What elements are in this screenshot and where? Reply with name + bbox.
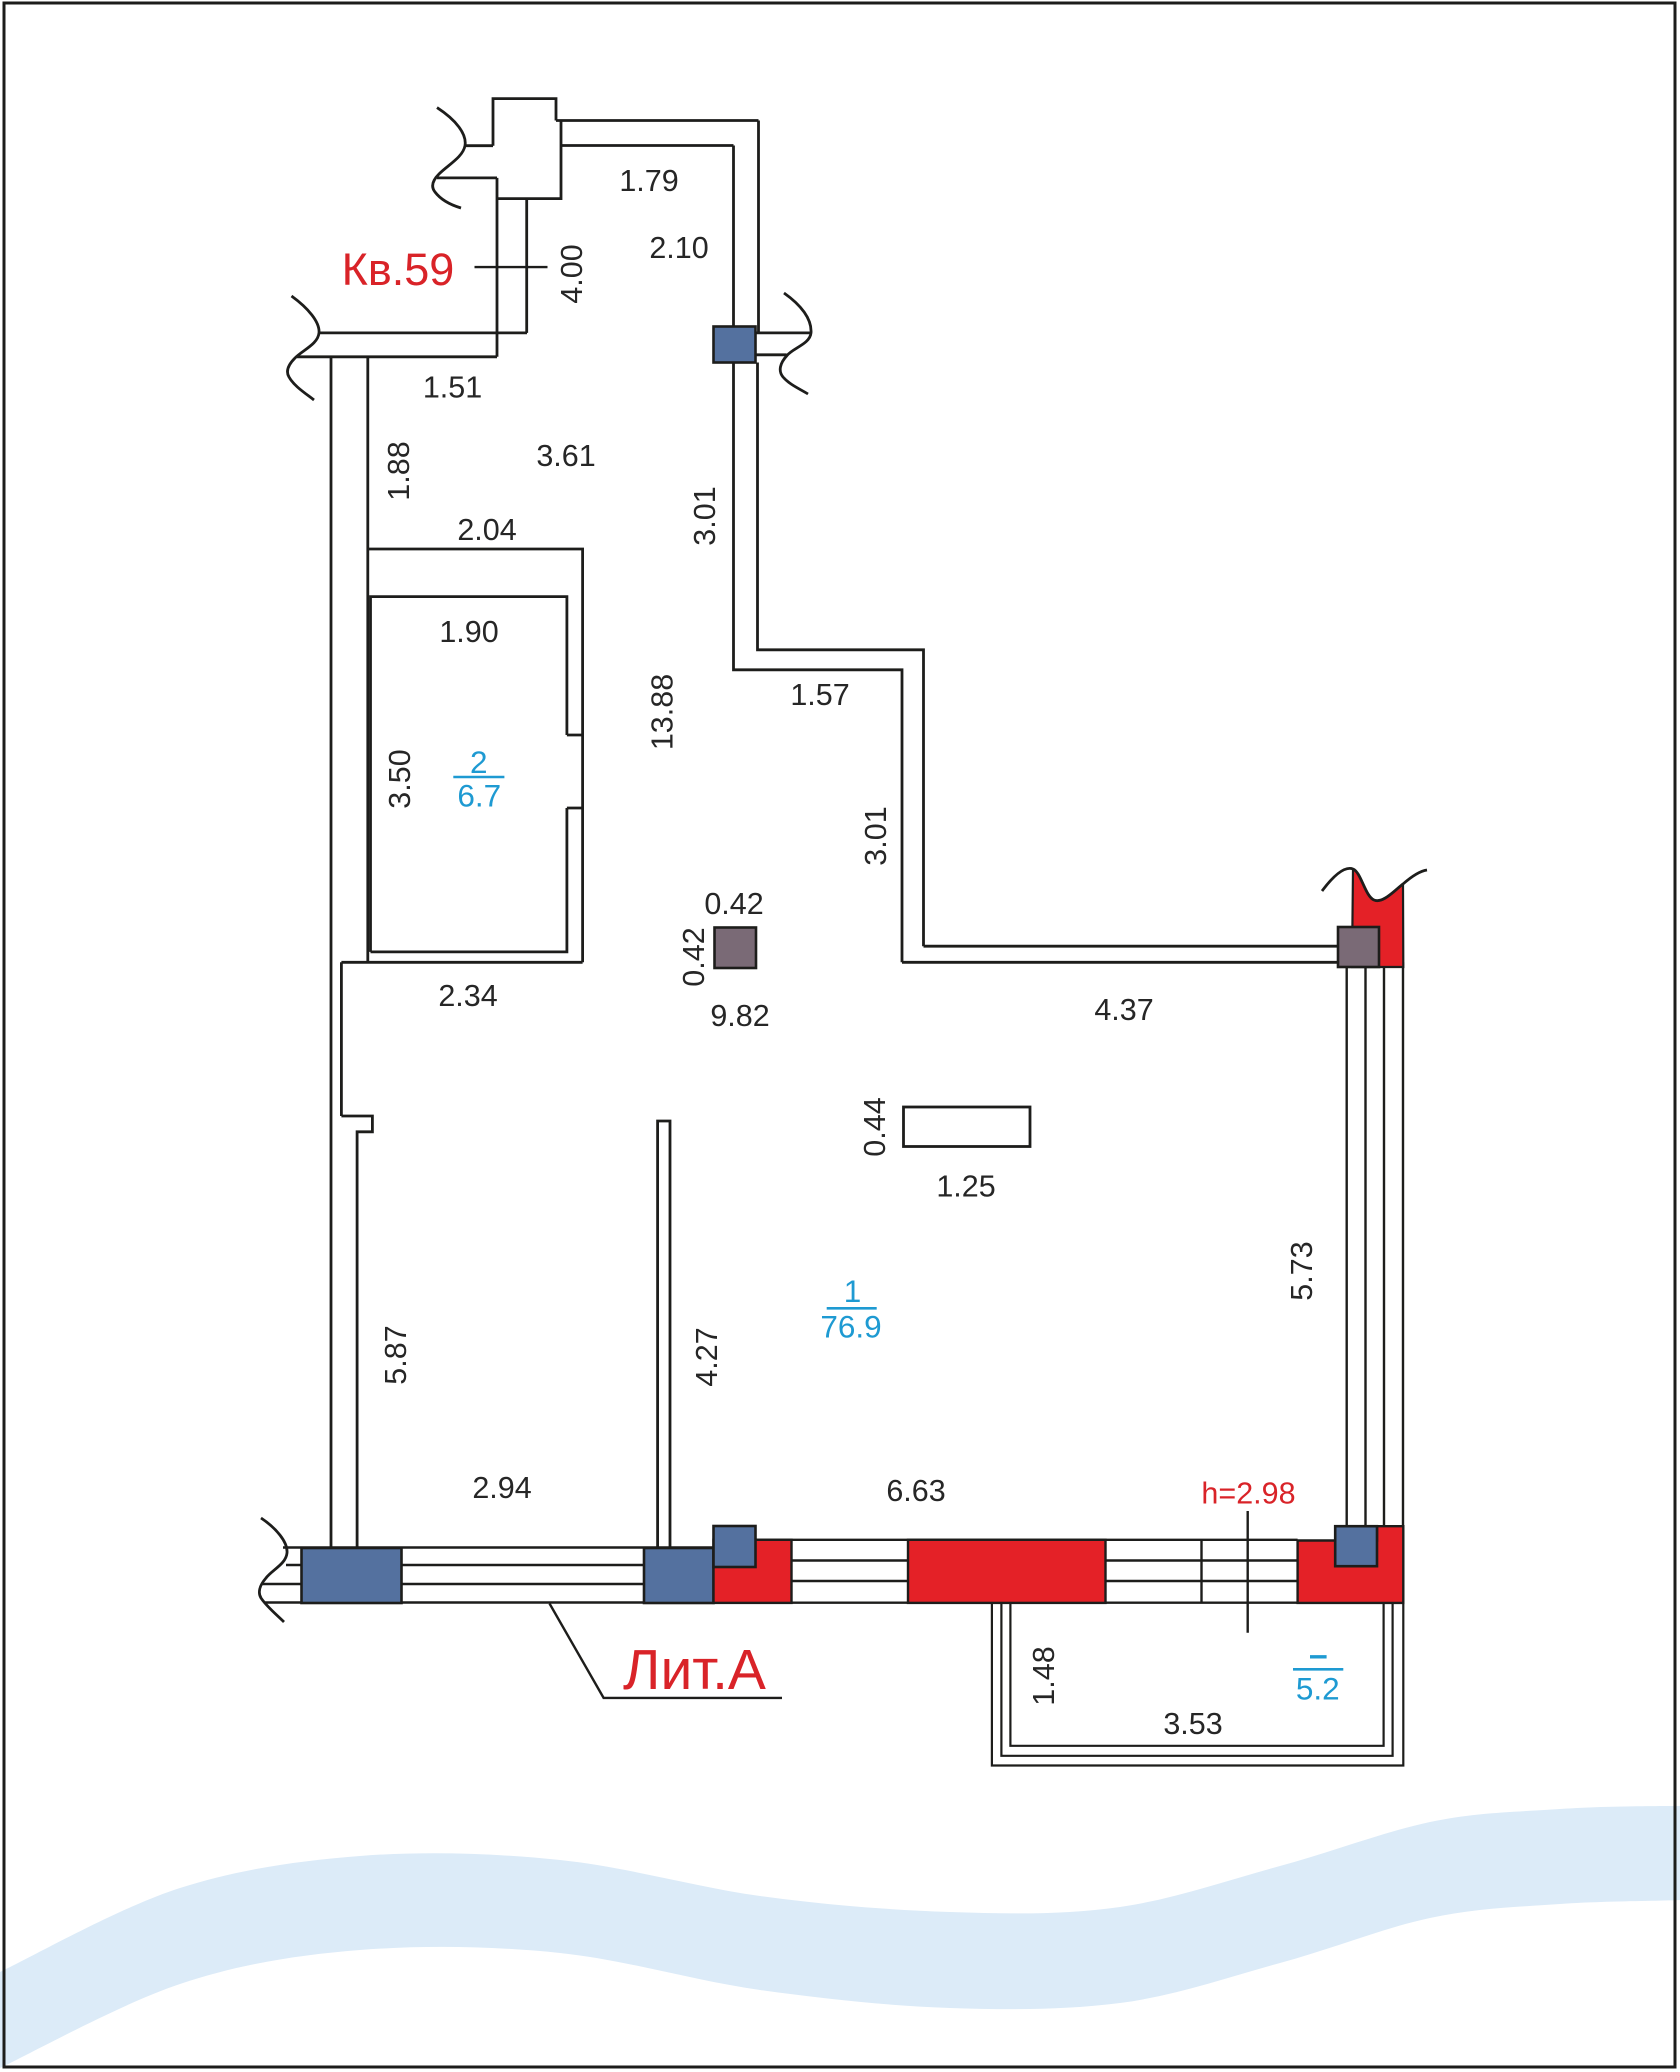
svg-text:1.79: 1.79 xyxy=(619,164,678,198)
svg-text:4.00: 4.00 xyxy=(555,244,589,303)
svg-text:Лит.А: Лит.А xyxy=(623,1638,766,1702)
svg-text:4.37: 4.37 xyxy=(1094,993,1153,1027)
svg-text:3.50: 3.50 xyxy=(383,749,417,808)
svg-text:5.2: 5.2 xyxy=(1296,1670,1340,1706)
svg-text:0.44: 0.44 xyxy=(858,1097,892,1156)
svg-text:1.25: 1.25 xyxy=(936,1170,995,1204)
svg-text:1: 1 xyxy=(844,1273,862,1309)
svg-text:Кв.59: Кв.59 xyxy=(342,244,455,295)
svg-text:5.73: 5.73 xyxy=(1285,1241,1319,1300)
svg-text:0.42: 0.42 xyxy=(677,927,711,986)
svg-text:2: 2 xyxy=(470,744,488,780)
svg-text:1.48: 1.48 xyxy=(1027,1646,1061,1705)
svg-text:3.01: 3.01 xyxy=(859,806,893,865)
svg-text:5.87: 5.87 xyxy=(379,1325,413,1384)
svg-text:1.90: 1.90 xyxy=(439,615,498,649)
svg-text:6.7: 6.7 xyxy=(457,778,501,814)
svg-text:2.04: 2.04 xyxy=(457,513,516,547)
svg-text:13.88: 13.88 xyxy=(645,674,679,750)
svg-text:1.88: 1.88 xyxy=(382,441,416,500)
svg-text:6.63: 6.63 xyxy=(886,1474,945,1508)
svg-text:3.01: 3.01 xyxy=(688,486,722,545)
svg-text:9.82: 9.82 xyxy=(710,999,769,1033)
svg-text:2.10: 2.10 xyxy=(649,231,708,265)
svg-text:2.94: 2.94 xyxy=(472,1471,531,1505)
svg-text:2.34: 2.34 xyxy=(438,979,497,1013)
svg-text:3.53: 3.53 xyxy=(1163,1707,1222,1741)
svg-text:76.9: 76.9 xyxy=(820,1309,881,1345)
svg-text:0.42: 0.42 xyxy=(704,887,763,921)
svg-text:1.51: 1.51 xyxy=(423,371,482,405)
svg-text:1.57: 1.57 xyxy=(790,678,849,712)
svg-text:h=2.98: h=2.98 xyxy=(1201,1477,1295,1511)
svg-text:3.61: 3.61 xyxy=(536,439,595,473)
svg-text:4.27: 4.27 xyxy=(690,1327,724,1386)
